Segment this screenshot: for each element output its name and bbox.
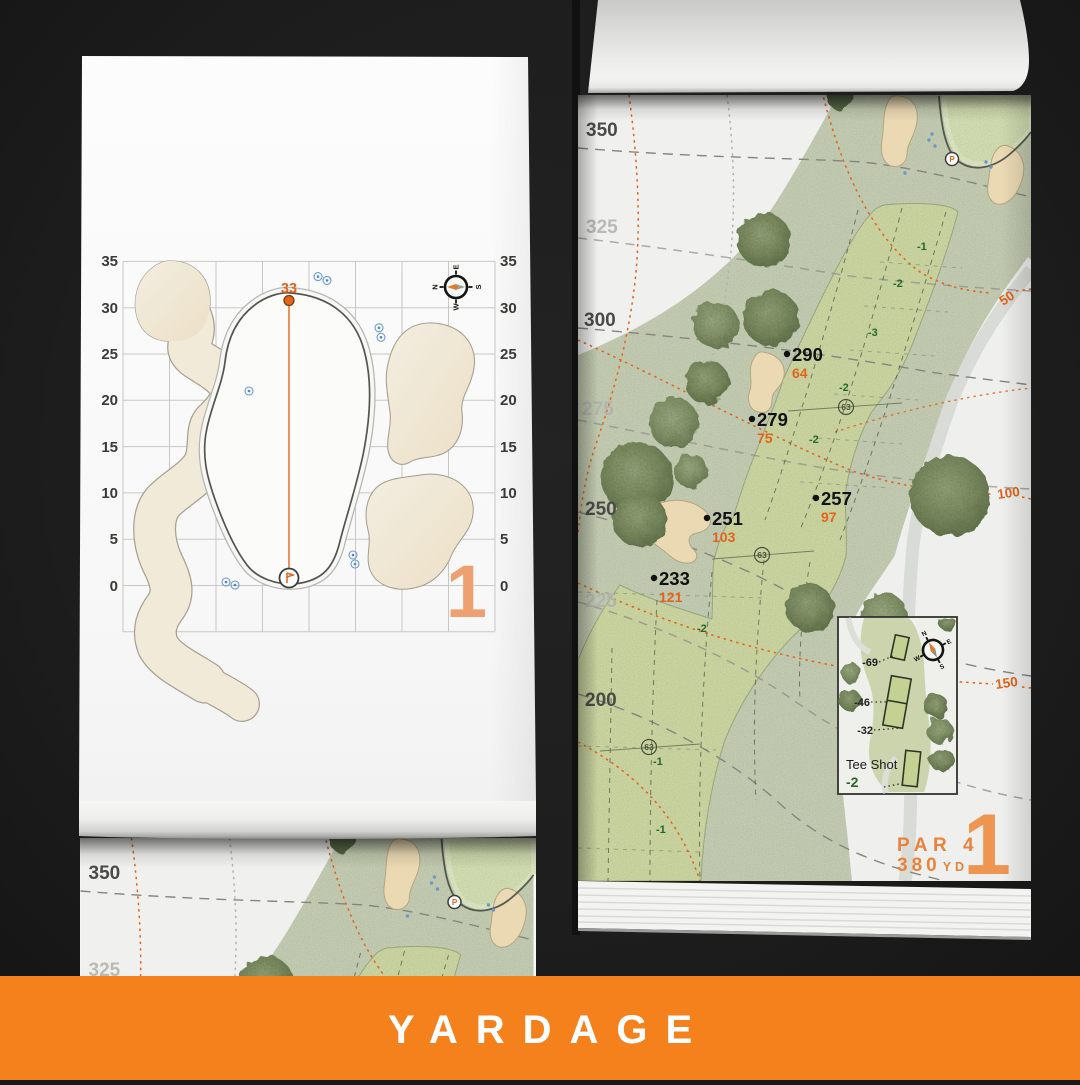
svg-text:YARDAGE: YARDAGE (388, 1008, 710, 1052)
svg-text:25: 25 (101, 346, 118, 363)
svg-text:30: 30 (101, 300, 118, 317)
svg-text:N: N (431, 284, 440, 289)
svg-text:20: 20 (101, 392, 118, 409)
svg-text:20: 20 (500, 392, 517, 409)
svg-text:15: 15 (101, 439, 118, 456)
svg-text:10: 10 (500, 485, 517, 502)
svg-text:30: 30 (500, 300, 517, 317)
svg-text:S: S (474, 284, 483, 289)
svg-text:0: 0 (110, 578, 118, 595)
svg-text:5: 5 (110, 531, 118, 548)
svg-text:5: 5 (500, 531, 508, 548)
svg-text:W: W (452, 303, 461, 311)
svg-text:1: 1 (446, 550, 487, 633)
svg-text:35: 35 (500, 253, 517, 270)
svg-text:10: 10 (101, 485, 118, 502)
svg-text:15: 15 (500, 439, 517, 456)
svg-text:E: E (452, 264, 461, 269)
svg-text:33: 33 (281, 281, 297, 297)
svg-text:25: 25 (500, 346, 517, 363)
svg-text:0: 0 (500, 578, 508, 595)
svg-text:35: 35 (101, 253, 118, 270)
